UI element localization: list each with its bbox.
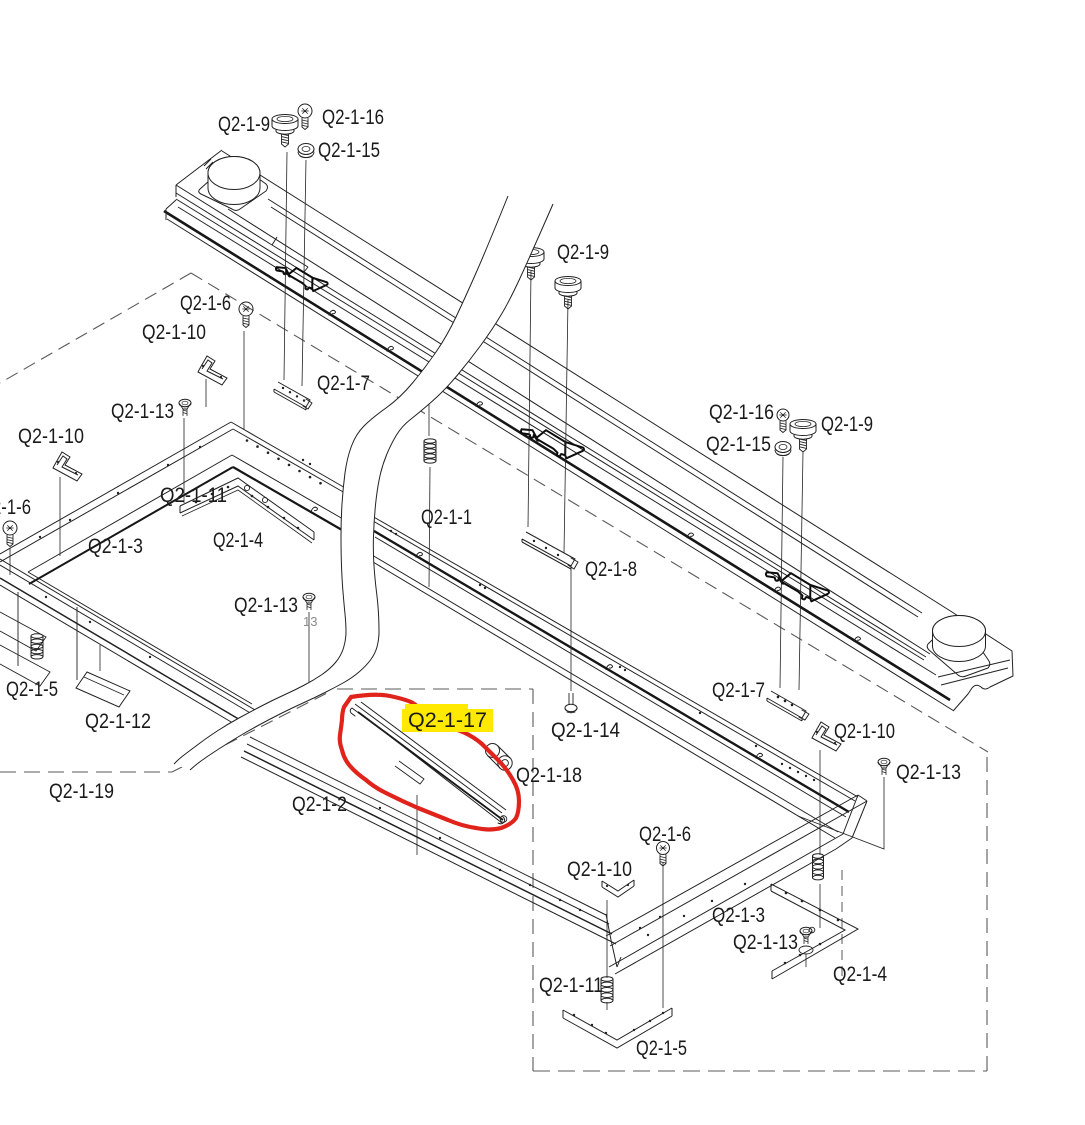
svg-text:Q2-1-4: Q2-1-4 <box>213 529 263 552</box>
svg-text:Q2-1-5: Q2-1-5 <box>6 678 58 701</box>
svg-text:Q2-1-9: Q2-1-9 <box>218 113 270 136</box>
svg-text:Q2-1-3: Q2-1-3 <box>88 535 143 558</box>
svg-text:Q2-1-5: Q2-1-5 <box>636 1037 687 1060</box>
svg-text:Q2-1-15: Q2-1-15 <box>706 433 771 456</box>
svg-text:Q2-1-2: Q2-1-2 <box>292 793 347 816</box>
svg-text:Q2-1-7: Q2-1-7 <box>317 372 370 395</box>
svg-text:Q2-1-17: Q2-1-17 <box>408 709 487 732</box>
svg-text:Q2-1-6: Q2-1-6 <box>180 292 231 315</box>
svg-text:Q2-1-16: Q2-1-16 <box>322 106 384 129</box>
svg-text:Q2-1-14: Q2-1-14 <box>551 719 620 742</box>
svg-text:Q2-1-9: Q2-1-9 <box>557 241 609 264</box>
svg-text:Q2-1-10: Q2-1-10 <box>834 720 895 743</box>
svg-text:Q2-1-10: Q2-1-10 <box>142 321 206 344</box>
svg-text:Q2-1-8: Q2-1-8 <box>585 558 637 581</box>
svg-text:Q2-1-15: Q2-1-15 <box>318 139 380 162</box>
svg-text:Q2-1-11: Q2-1-11 <box>160 484 227 507</box>
svg-text:Q2-1-19: Q2-1-19 <box>49 780 114 803</box>
svg-text:Q2-1-10: Q2-1-10 <box>567 858 632 881</box>
svg-text:Q2-1-13: Q2-1-13 <box>896 761 961 784</box>
svg-text:Q2-1-7: Q2-1-7 <box>712 679 765 702</box>
svg-text:Q2-1-1: Q2-1-1 <box>421 506 472 529</box>
svg-text:Q2-1-6: Q2-1-6 <box>639 823 691 846</box>
svg-text:Q2-1-12: Q2-1-12 <box>85 710 151 733</box>
svg-text:Q2-1-10: Q2-1-10 <box>18 425 84 448</box>
svg-text:Q2-1-13: Q2-1-13 <box>111 400 174 423</box>
svg-text:13: 13 <box>303 614 317 629</box>
svg-text:Q2-1-13: Q2-1-13 <box>234 594 298 617</box>
svg-text:Q2-1-4: Q2-1-4 <box>833 963 887 986</box>
svg-text:Q2-1-13: Q2-1-13 <box>733 931 798 954</box>
svg-text:Q2-1-3: Q2-1-3 <box>712 904 765 927</box>
svg-text:Q2-1-6: Q2-1-6 <box>0 496 31 519</box>
svg-text:Q2-1-18: Q2-1-18 <box>516 764 582 787</box>
svg-text:Q2-1-16: Q2-1-16 <box>709 401 774 424</box>
svg-text:Q2-1-9: Q2-1-9 <box>821 413 873 436</box>
svg-text:Q2-1-11: Q2-1-11 <box>539 974 603 997</box>
